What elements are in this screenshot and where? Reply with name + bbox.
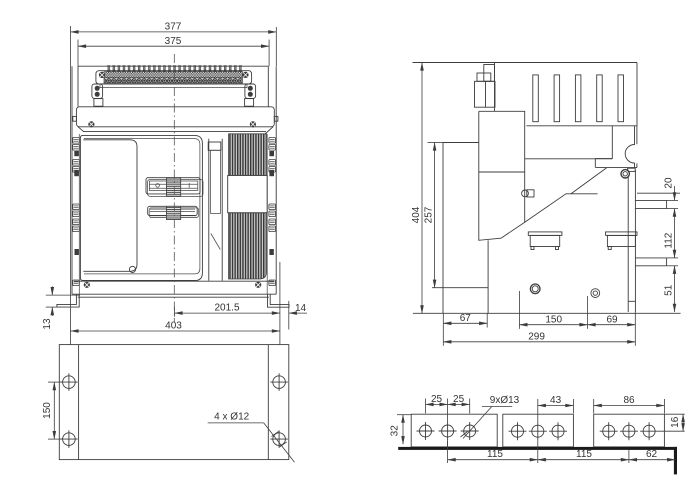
- svg-text:20: 20: [664, 177, 675, 189]
- svg-text:14: 14: [295, 303, 307, 314]
- svg-text:299: 299: [528, 331, 545, 342]
- svg-text:377: 377: [165, 22, 182, 33]
- svg-text:404: 404: [411, 206, 422, 223]
- svg-text:375: 375: [165, 36, 182, 47]
- svg-text:25: 25: [453, 394, 465, 405]
- svg-text:115: 115: [576, 449, 592, 460]
- svg-text:4 x Ø12: 4 x Ø12: [214, 412, 249, 423]
- svg-text:25: 25: [431, 394, 443, 405]
- svg-text:150: 150: [545, 314, 562, 325]
- svg-text:13: 13: [42, 318, 53, 330]
- svg-text:257: 257: [424, 206, 435, 223]
- svg-text:9xØ13: 9xØ13: [490, 395, 520, 406]
- svg-text:86: 86: [623, 395, 635, 406]
- svg-text:112: 112: [664, 232, 675, 248]
- svg-text:62: 62: [646, 449, 658, 460]
- svg-text:32: 32: [390, 425, 401, 437]
- svg-text:403: 403: [165, 321, 182, 332]
- svg-text:69: 69: [606, 314, 618, 325]
- svg-text:201.5: 201.5: [214, 303, 239, 314]
- svg-text:67: 67: [460, 313, 472, 324]
- svg-text:51: 51: [664, 284, 675, 296]
- svg-text:43: 43: [550, 395, 562, 406]
- svg-text:115: 115: [487, 449, 503, 460]
- svg-text:150: 150: [42, 402, 53, 419]
- svg-text:16: 16: [670, 416, 681, 428]
